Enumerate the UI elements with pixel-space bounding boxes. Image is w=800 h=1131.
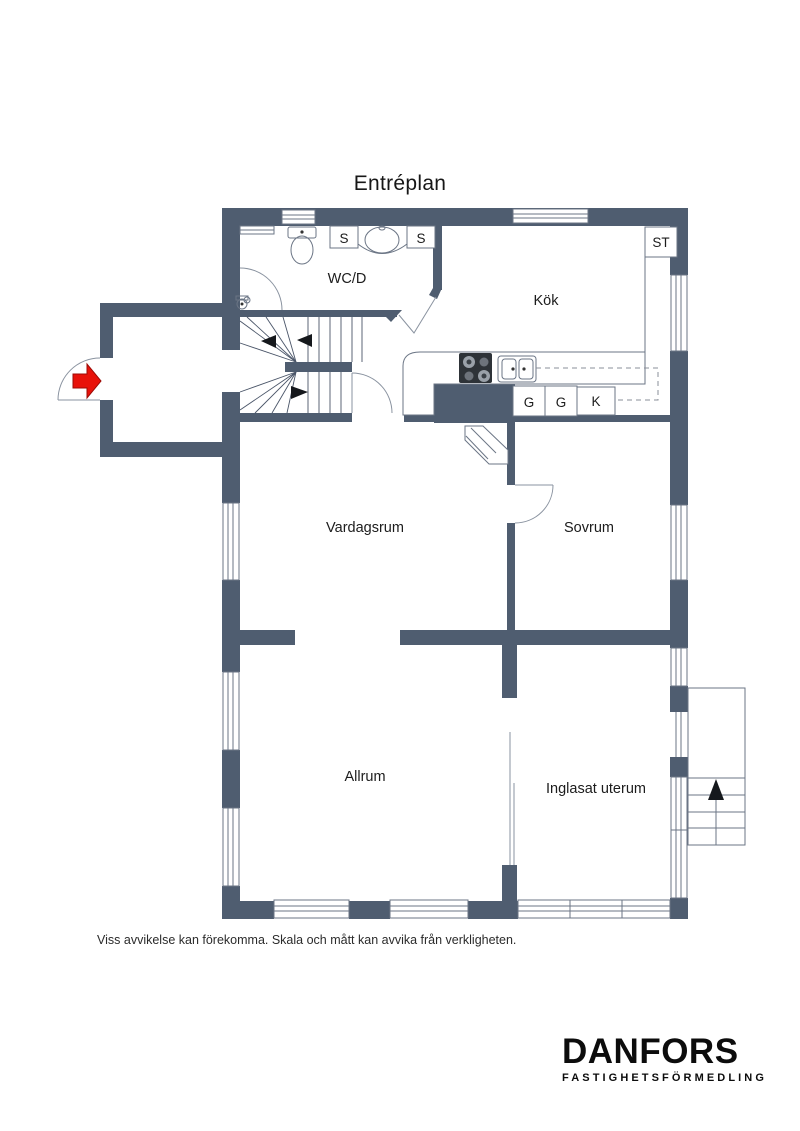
window xyxy=(282,210,315,224)
logo-name: DANFORS xyxy=(562,1036,758,1068)
closet-s1: S xyxy=(330,226,358,248)
entrance-arrow-icon xyxy=(73,364,101,398)
window xyxy=(223,503,239,580)
chimney xyxy=(465,426,508,464)
room-label-uterum: Inglasat uterum xyxy=(546,781,646,797)
room-labels: WC/D Kök Vardagsrum Sovrum Allrum Inglas… xyxy=(326,271,646,797)
broker-logo: DANFORS FASTIGHETSFÖRMEDLING xyxy=(562,1036,758,1084)
glazed-door xyxy=(676,712,681,757)
window xyxy=(671,648,687,686)
closet-s1-label: S xyxy=(339,231,348,246)
hall-door-arc xyxy=(352,373,392,413)
stove-icon xyxy=(459,353,492,383)
cabinet-g2-label: G xyxy=(556,395,567,410)
logo-tagline: FASTIGHETSFÖRMEDLING xyxy=(562,1072,758,1084)
window xyxy=(671,275,687,351)
wc-door xyxy=(399,297,436,333)
sovrum-door-arc xyxy=(515,485,553,523)
closet-st: ST xyxy=(645,227,677,257)
cabinet-k: K xyxy=(577,387,615,415)
floorplan-canvas: S S ST G G K xyxy=(0,0,800,1131)
room-label-allrum: Allrum xyxy=(344,769,385,785)
cabinet-k-label: K xyxy=(591,394,600,409)
window xyxy=(223,672,239,750)
window xyxy=(671,505,687,580)
cabinet-g1-label: G xyxy=(524,395,535,410)
room-label-wc: WC/D xyxy=(328,271,367,287)
vestibule xyxy=(58,303,222,457)
room-label-vardagsrum: Vardagsrum xyxy=(326,520,404,536)
washbasin-icon xyxy=(358,226,407,254)
window xyxy=(518,900,670,918)
window xyxy=(390,900,468,918)
window xyxy=(513,209,588,223)
interior-walls xyxy=(222,226,688,902)
closet-st-label: ST xyxy=(652,235,669,250)
room-label-sovrum: Sovrum xyxy=(564,520,614,536)
toilet-icon xyxy=(288,227,316,264)
cabinet-g1: G xyxy=(513,386,545,416)
wc-fixtures xyxy=(240,226,407,310)
stairs-icon xyxy=(240,317,362,413)
shower-curtain-arc xyxy=(240,268,282,310)
window xyxy=(274,900,349,918)
cabinet-g2: G xyxy=(545,386,577,416)
deck-direction-arrow xyxy=(708,779,724,800)
room-label-kok: Kök xyxy=(534,293,560,309)
window xyxy=(223,808,239,886)
window xyxy=(671,777,687,898)
exterior-deck-stairs xyxy=(688,688,745,845)
closet-s2-label: S xyxy=(416,231,425,246)
closet-s2: S xyxy=(407,226,435,248)
floorplan-page: Entréplan xyxy=(0,0,800,1131)
disclaimer-text: Viss avvikelse kan förekomma. Skala och … xyxy=(97,933,516,947)
radiator-icon xyxy=(240,226,274,234)
